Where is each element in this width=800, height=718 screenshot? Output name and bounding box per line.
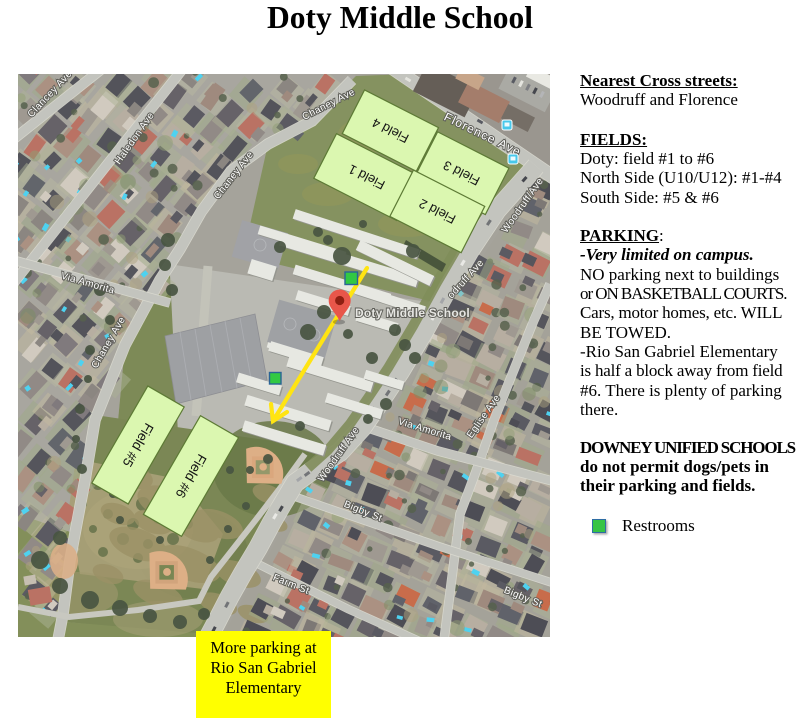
svg-text:Doty Middle School: Doty Middle School xyxy=(355,306,470,320)
